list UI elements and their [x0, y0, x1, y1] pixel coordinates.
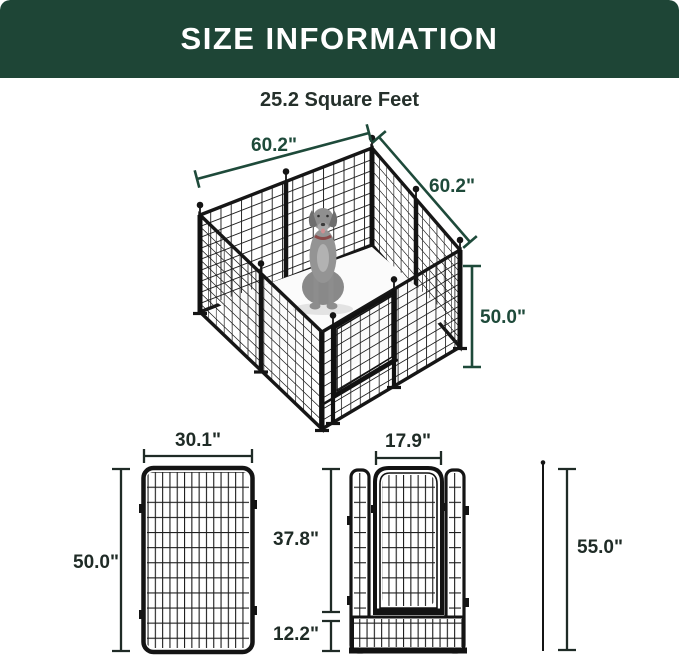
dim-label-bottom-height: 12.2": [273, 624, 319, 645]
dim-door-height: [322, 469, 340, 612]
dim-label-stake-height: 55.0": [577, 537, 623, 558]
dim-label-pen-width-right: 60.2": [429, 176, 475, 197]
dim-door-width: [376, 451, 441, 465]
playpen-size-figure: 60.2" 60.2" 50.0" 30.1": [0, 0, 679, 655]
dim-label-panel-height: 50.0": [73, 552, 119, 573]
dim-stake-height: [558, 469, 576, 650]
dim-label-pen-width-left: 60.2": [251, 135, 297, 156]
dim-pen-height: [463, 266, 481, 367]
dim-label-pen-height: 50.0": [480, 307, 526, 328]
door-panel-diagram: [347, 468, 469, 652]
size-information-infographic: SIZE INFORMATION 25.2 Square Feet: [0, 0, 679, 655]
isometric-playpen: [193, 136, 467, 431]
dim-bottom-height: [322, 621, 340, 651]
dim-label-panel-width: 30.1": [175, 430, 221, 451]
single-panel-diagram: [139, 468, 257, 652]
dim-label-door-width: 17.9": [385, 431, 431, 452]
ground-stake-diagram: [541, 460, 546, 651]
dim-label-door-height: 37.8": [273, 529, 319, 550]
dim-panel-width: [144, 449, 252, 463]
